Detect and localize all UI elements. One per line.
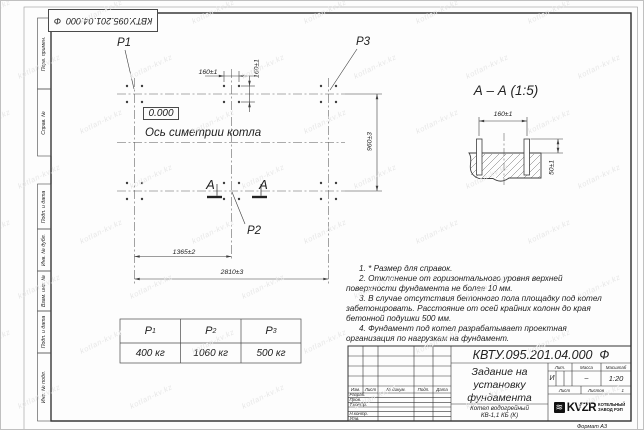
product-line-2: КВ-1,1 КБ (К) [481, 413, 518, 420]
sheets-label: Листов [588, 388, 604, 393]
margin-label: Подп. и дата [41, 190, 47, 222]
p-label: P [145, 325, 152, 337]
p-label: P [265, 325, 272, 337]
dim-mid-span: 1365±2 [168, 248, 200, 257]
load-table-header-p3: P3 [241, 320, 301, 342]
margin-cell-podp-data-2: Подп. и дата [38, 311, 52, 353]
margin-cell-inv-dubl: Инв. № дубл. [38, 229, 52, 271]
scale-header: Масштаб [601, 364, 631, 371]
drawing-title-line-3: фундамента [451, 391, 548, 404]
logo-caption-line-2: ЗАВОД РЭП [598, 408, 625, 413]
note-1: 1. * Размер для справок. [346, 264, 614, 274]
rotated-doc-number: КВТУ.095.201.04.000 Ф [54, 16, 152, 26]
header-doc-no: № докум. [378, 387, 414, 394]
doc-number: КВТУ.095.201.04.000 Ф [451, 347, 631, 362]
notes-block: 1. * Размер для справок. 2. Отклонение о… [346, 264, 614, 344]
format-label: Формат А3 [569, 423, 615, 430]
load-point-p1-label: P1 [112, 36, 136, 50]
section-letter-right: А [255, 176, 272, 192]
margin-cell-sprav-no: Справ. № [38, 89, 52, 156]
kvzr-logo-icon: ≋ [554, 402, 565, 413]
margin-label: Справ. № [41, 111, 47, 135]
section-letter-left: А [202, 176, 219, 192]
header-data: Дата [433, 387, 451, 394]
header-podp: Подп. [414, 387, 433, 394]
header-list: Лист [363, 387, 378, 394]
section-dim-bolt-spacing: 160±1 [490, 110, 516, 119]
section-view-title: А – А (1:5) [462, 82, 550, 99]
sign-row-tkontr: Т.контр. [350, 403, 378, 408]
sheets-value: 1 [622, 388, 624, 393]
drawing-title-line-1: Задание на [451, 365, 548, 378]
lit-header: Лит. [548, 364, 572, 371]
plan-axes [117, 69, 345, 284]
symmetry-axis-label: Ось симетрии котла [145, 127, 275, 141]
margin-cell-vzam-inv: Взам. инв. № [38, 271, 52, 311]
section-dim-bolt-protrusion: 50±1 [548, 155, 557, 181]
product-name: Котел водогрейный КВ-1,1 КБ (К) [451, 406, 548, 421]
margin-label: Подп. и дата [41, 316, 47, 348]
section-dimensions [479, 117, 563, 153]
lit-value: И [548, 372, 556, 385]
section-dimension-arrows [479, 120, 559, 153]
mass-value: – [572, 372, 601, 385]
sign-row-utv: Утв. [350, 417, 378, 422]
margin-label: Инв. № подл. [41, 371, 47, 403]
margin-cell-podp-data-1: Подп. и дата [38, 184, 52, 229]
p-sub: 1 [152, 328, 156, 335]
note-4: 4. Фундамент под котел разрабатывает про… [346, 324, 614, 344]
dim-row-spacing: 960±3 [365, 128, 374, 154]
sheet-label: Лист [548, 387, 581, 394]
drawing-title-line-2: установку [451, 378, 548, 391]
level-mark: 0.000 [143, 107, 179, 121]
kvzr-logo-text: KVZR [567, 402, 596, 414]
margin-label: Инв. № дубл. [41, 234, 47, 266]
load-table-header-p1: P1 [120, 320, 181, 342]
mass-header: Масса [572, 364, 601, 371]
dim-full-span: 2810±3 [216, 268, 248, 277]
scale-value: 1:20 [601, 372, 631, 385]
margin-label: Перв. примен. [41, 36, 47, 70]
dim-bolt-spacing-y: 160±1 [252, 56, 261, 82]
sheets-cell: Листов 1 [581, 387, 631, 394]
note-3: 3. В случае отсутствия бетонного пола пл… [346, 294, 614, 324]
load-table-value-p2: 1060 кг [181, 344, 242, 362]
p-sub: 2 [212, 328, 216, 335]
margin-label: Взам. инв. № [41, 275, 47, 307]
dim-bolt-spacing-x: 160±1 [195, 68, 221, 77]
drawing-sheet: КВТУ.095.201.04.000 Ф Перв. примен. Спра… [0, 0, 644, 430]
kvzr-logo-caption: КОТЕЛЬНЫЙ ЗАВОД РЭП [598, 403, 625, 413]
note-2: 2. Отклонение от горизонтального уровня … [346, 274, 614, 294]
kvzr-logo: ≋ KVZR КОТЕЛЬНЫЙ ЗАВОД РЭП [548, 395, 631, 421]
p-sub: 3 [273, 328, 277, 335]
rotated-doc-number-stamp: КВТУ.095.201.04.000 Ф [48, 9, 158, 32]
load-point-p2-label: P2 [242, 224, 266, 238]
margin-cell-inv-podl: Инв. № подл. [38, 353, 52, 421]
load-table-value-p1: 400 кг [120, 344, 181, 362]
load-table-value-p3: 500 кг [241, 344, 301, 362]
load-point-p3-label: P3 [351, 35, 375, 49]
load-table-header-p2: P2 [181, 320, 242, 342]
